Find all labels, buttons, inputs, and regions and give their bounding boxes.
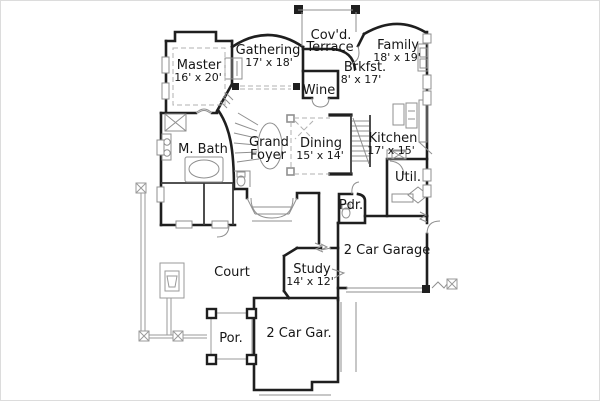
room-label-util: Util. — [395, 170, 421, 185]
fountain-icon — [160, 263, 184, 298]
floor-plan-image: Master 16' x 20' Gathering 17' x 18' Cov… — [0, 0, 600, 401]
room-label-por: Por. — [219, 331, 243, 346]
room-label-foyer-2: Foyer — [250, 148, 287, 163]
room-label-mbath: M. Bath — [178, 142, 228, 157]
fence-line — [139, 192, 207, 338]
room-label-wine: Wine — [303, 83, 335, 98]
room-label-gar2: 2 Car Gar. — [266, 326, 331, 341]
room-label-court: Court — [214, 265, 250, 280]
room-dims-brkfst: 8' x 17' — [341, 73, 382, 86]
room-dims-kitchen: 17' x 15' — [367, 144, 415, 157]
room-dims-dining: 15' x 14' — [296, 149, 344, 162]
room-label-garage: 2 Car Garage — [344, 243, 431, 258]
bathtub-icon — [185, 157, 223, 182]
room-dims-study: 14' x 12' — [286, 275, 334, 288]
fireplace-icon — [225, 58, 242, 79]
shower-icon — [165, 114, 186, 131]
room-dims-gathering: 17' x 18' — [245, 56, 293, 69]
room-label-pdr: Pdr. — [339, 198, 363, 213]
room-dims-master: 16' x 20' — [174, 71, 222, 84]
floor-plan-svg: Master 16' x 20' Gathering 17' x 18' Cov… — [1, 1, 600, 401]
wc-toilet-icon — [237, 172, 245, 186]
room-label-terrace-2: Terrace — [305, 40, 353, 55]
